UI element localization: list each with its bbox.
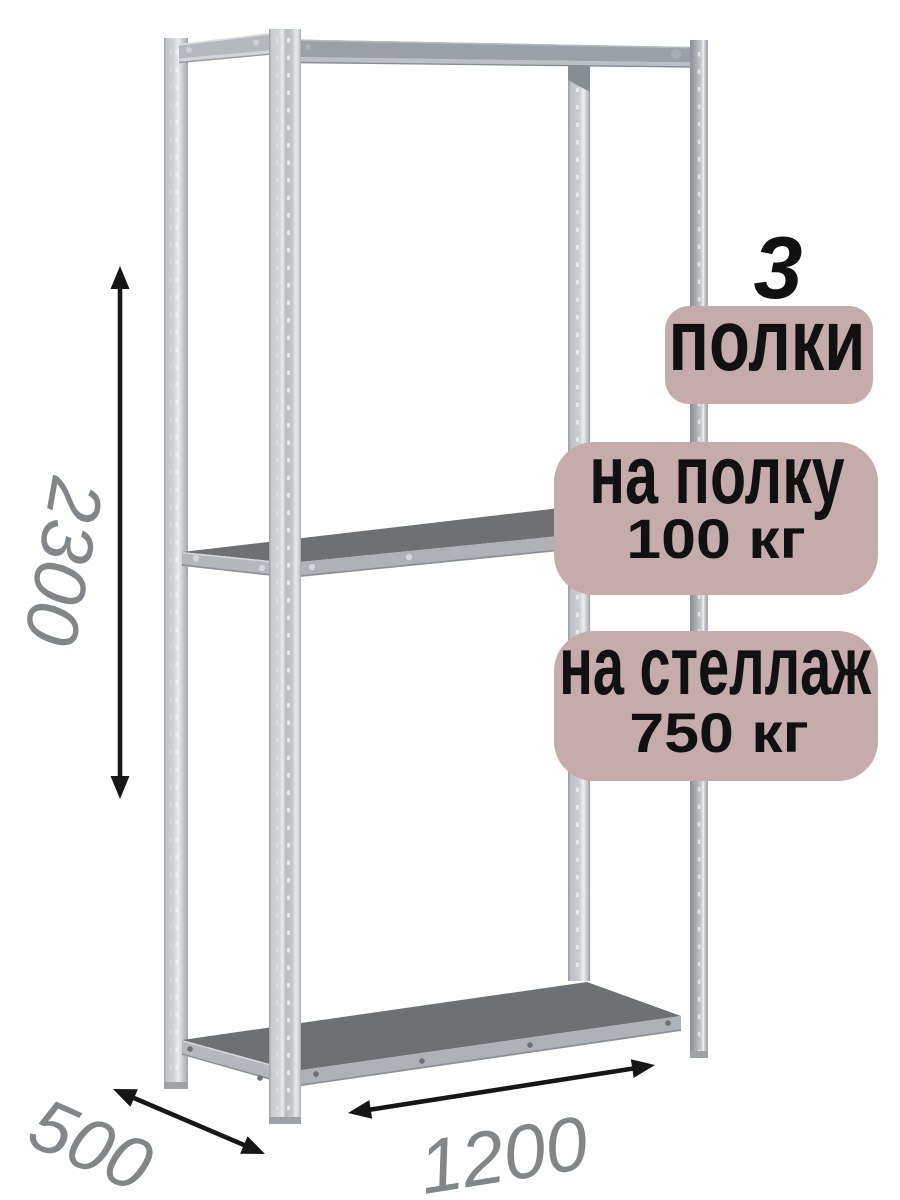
svg-text:на стеллаж: на стеллаж xyxy=(559,619,872,712)
svg-text:100 кг: 100 кг xyxy=(626,507,806,570)
svg-text:полки: полки xyxy=(669,293,866,389)
svg-text:750 кг: 750 кг xyxy=(629,701,809,764)
